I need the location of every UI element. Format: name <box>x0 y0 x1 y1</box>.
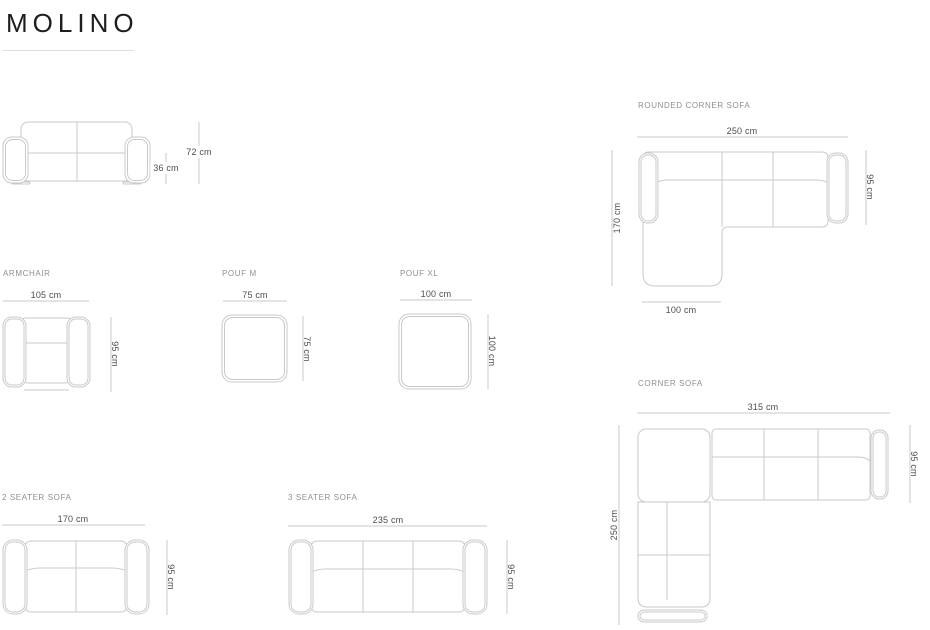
sofa-outline <box>643 152 828 286</box>
dim-total-height-label: 72 cm <box>183 146 215 158</box>
two-seater-sofa-label: 2 SEATER SOFA <box>2 493 71 502</box>
sofa-front-feet <box>12 182 141 184</box>
dim-depth-label: 100 cm <box>487 336 497 367</box>
dim-depth-label: 95 cm <box>110 341 120 367</box>
dim-width-label: 235 cm <box>373 515 404 525</box>
left-arm <box>639 153 658 223</box>
right-arm <box>463 540 487 614</box>
sofa-front-right-arm <box>125 137 150 183</box>
corner-sofa-label: CORNER SOFA <box>638 379 703 388</box>
long-section <box>712 429 870 500</box>
left-arm <box>3 540 27 614</box>
right-arm <box>871 430 888 499</box>
dim-depth-label: 75 cm <box>302 336 312 362</box>
dim-chaise-width-label: 100 cm <box>666 305 697 315</box>
dim-side-length-label: 250 cm <box>609 510 619 541</box>
sofa-front-left-arm <box>3 137 28 183</box>
pouf-body <box>222 315 287 382</box>
corner-sofa-drawing <box>600 400 930 630</box>
pouf-m-label: POUF M <box>222 269 257 278</box>
dim-width-label: 250 cm <box>727 126 758 136</box>
dim-depth-label: 95 cm <box>166 564 176 590</box>
dim-depth-label: 95 cm <box>506 564 516 590</box>
chaise-section <box>638 502 710 607</box>
right-arm <box>67 317 90 387</box>
sofa-body <box>311 541 465 612</box>
left-arm <box>289 540 313 614</box>
molino-dimension-sheet: MOLINO <box>0 0 930 630</box>
dimension-lines <box>223 301 303 381</box>
sofa-front-seat <box>21 153 132 181</box>
rounded-corner-sofa-drawing <box>600 125 890 315</box>
dim-depth-label: 95 cm <box>909 451 919 477</box>
corner-section <box>638 429 710 502</box>
armchair-label: ARMCHAIR <box>3 269 50 278</box>
dim-width-label: 75 cm <box>242 290 268 300</box>
dim-width-label: 170 cm <box>58 514 89 524</box>
three-seater-sofa-drawing <box>283 518 523 630</box>
pouf-xl-label: POUF XL <box>400 269 438 278</box>
pouf-xl-drawing <box>385 294 500 396</box>
dim-width-label: 315 cm <box>748 402 779 412</box>
right-arm <box>125 540 149 614</box>
dim-width-label: 105 cm <box>31 290 62 300</box>
dim-seat-height-label: 36 cm <box>150 162 182 174</box>
sofa-body <box>25 541 127 612</box>
dim-width-label: 100 cm <box>421 289 452 299</box>
left-arm <box>3 317 26 387</box>
two-seater-sofa-drawing <box>0 518 180 630</box>
pouf-m-drawing <box>210 296 315 388</box>
seat <box>21 343 72 383</box>
three-seater-sofa-label: 3 SEATER SOFA <box>288 493 357 502</box>
title-underline <box>3 50 134 51</box>
bottom-arm <box>638 610 707 622</box>
pouf-body <box>399 314 471 389</box>
rounded-corner-sofa-label: ROUNDED CORNER SOFA <box>638 101 750 110</box>
dimension-lines <box>400 300 488 389</box>
cushion-seams <box>656 152 828 227</box>
backrest <box>20 318 73 343</box>
page-title: MOLINO <box>6 8 139 39</box>
dim-side-length-label: 170 cm <box>612 203 622 234</box>
right-arm <box>827 153 848 223</box>
armchair-drawing <box>0 296 125 400</box>
dim-depth-label: 95 cm <box>865 174 875 200</box>
